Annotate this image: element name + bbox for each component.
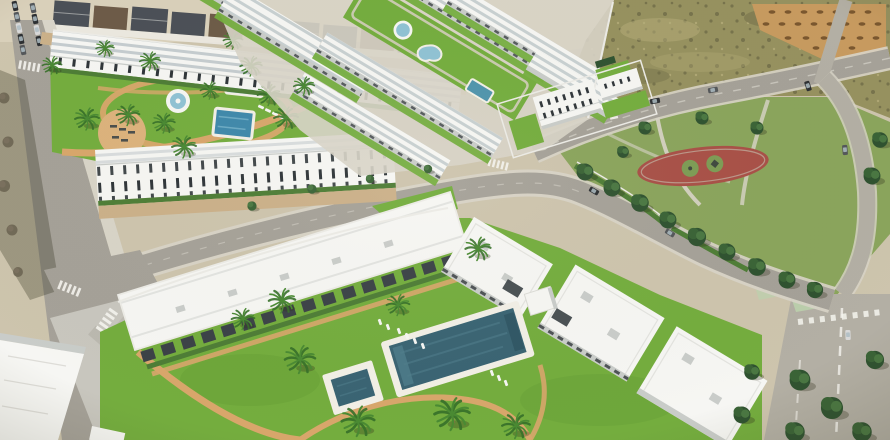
render-canvas (0, 0, 890, 440)
aerial-render-image (0, 0, 890, 440)
vignette-overlay (0, 0, 890, 440)
